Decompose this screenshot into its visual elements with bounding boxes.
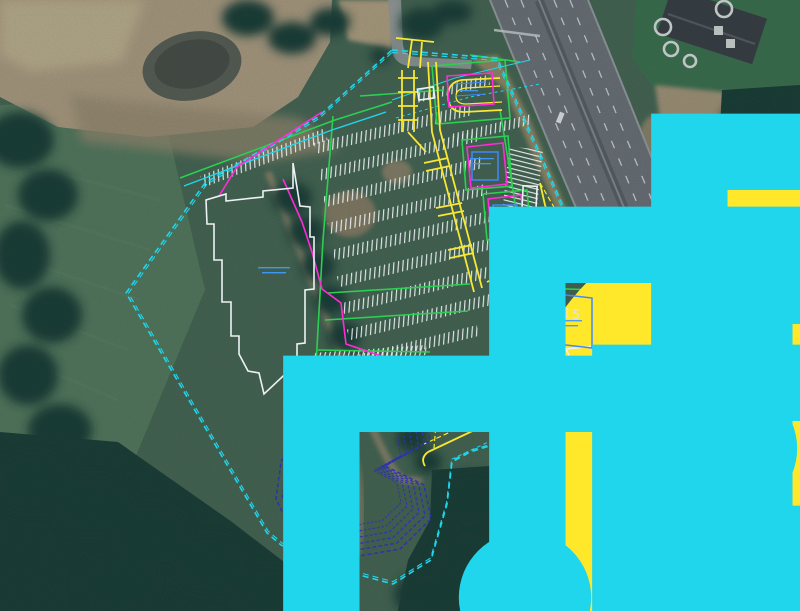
aerial-map-viewport[interactable]: 115 <box>0 0 800 611</box>
site-plan-canvas: 115 <box>0 0 800 611</box>
